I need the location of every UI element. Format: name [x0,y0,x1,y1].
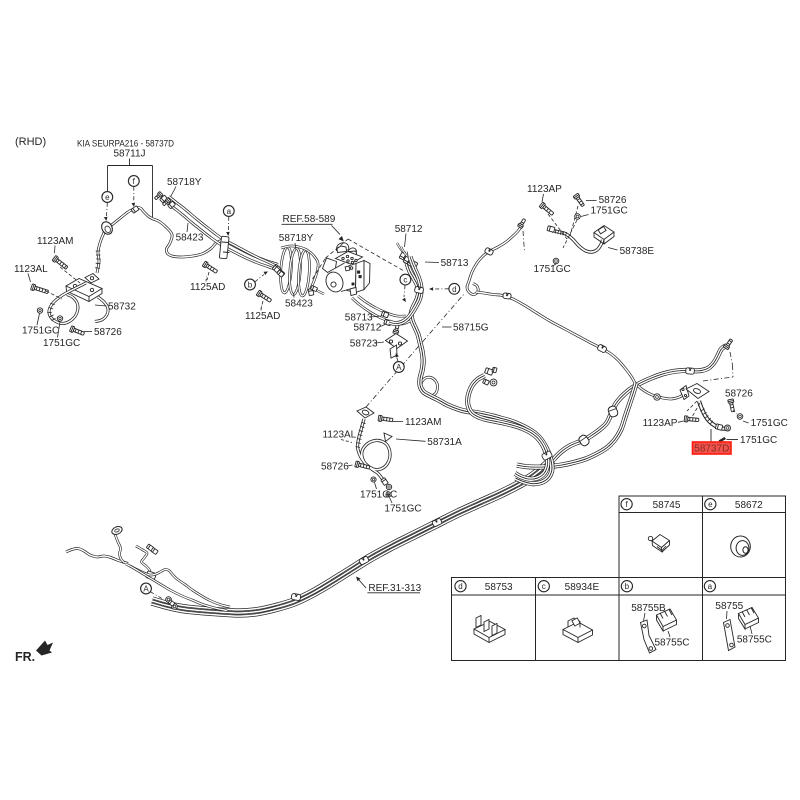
svg-text:FR.: FR. [15,650,35,664]
svg-text:58755C: 58755C [737,635,772,646]
svg-text:A: A [143,585,149,594]
svg-text:58753: 58753 [485,582,513,593]
svg-text:58723: 58723 [350,339,378,350]
svg-text:58423: 58423 [176,233,204,244]
svg-text:58726: 58726 [725,389,753,400]
svg-text:1751GC: 1751GC [43,338,80,349]
svg-text:58755B: 58755B [631,603,666,614]
svg-text:e: e [708,500,713,509]
svg-text:58672: 58672 [735,500,763,511]
svg-text:1751GC: 1751GC [591,206,628,217]
svg-text:1751GC: 1751GC [384,504,421,515]
svg-text:58738E: 58738E [620,246,655,257]
svg-text:58718Y: 58718Y [279,233,314,244]
svg-text:58732: 58732 [108,302,136,313]
svg-text:c: c [403,276,407,285]
svg-text:REF.58-589: REF.58-589 [283,214,336,225]
svg-text:d: d [452,285,456,294]
svg-text:58731A: 58731A [427,437,462,448]
svg-text:1751GC: 1751GC [360,490,397,501]
svg-text:1123AP: 1123AP [643,418,678,429]
svg-text:1751GC: 1751GC [534,264,571,275]
svg-text:e: e [105,193,110,202]
svg-text:A: A [396,363,402,372]
svg-text:58745: 58745 [653,500,681,511]
svg-text:58755: 58755 [715,601,743,612]
svg-text:58755C: 58755C [654,638,689,649]
svg-text:58726: 58726 [94,327,122,338]
svg-text:58711J: 58711J [113,149,145,160]
svg-text:58726: 58726 [599,195,627,206]
svg-text:b: b [625,582,630,591]
svg-text:58718Y: 58718Y [167,177,202,188]
svg-text:d: d [458,582,462,591]
svg-text:58934E: 58934E [565,582,600,593]
svg-text:a: a [227,207,232,216]
svg-text:58726: 58726 [321,462,349,473]
svg-text:1751GC: 1751GC [22,326,59,337]
svg-text:1123AL: 1123AL [14,264,48,275]
svg-text:(RHD): (RHD) [15,136,46,148]
svg-text:1123AM: 1123AM [405,417,442,428]
svg-text:58713: 58713 [441,258,469,269]
svg-text:1751GC: 1751GC [740,435,777,446]
svg-text:58712: 58712 [395,224,423,235]
svg-text:58423: 58423 [285,299,313,310]
svg-text:58712: 58712 [354,323,382,334]
svg-text:c: c [542,582,546,591]
svg-text:1123AL: 1123AL [323,430,357,441]
svg-text:b: b [248,281,253,290]
svg-text:1123AP: 1123AP [527,184,562,195]
svg-text:a: a [708,582,713,591]
svg-text:1125AD: 1125AD [190,282,225,293]
svg-text:58715G: 58715G [453,323,489,334]
svg-text:1751GC: 1751GC [751,418,788,429]
svg-text:1125AD: 1125AD [245,311,280,322]
svg-text:1123AM: 1123AM [37,236,74,247]
svg-text:58737D: 58737D [694,444,729,455]
